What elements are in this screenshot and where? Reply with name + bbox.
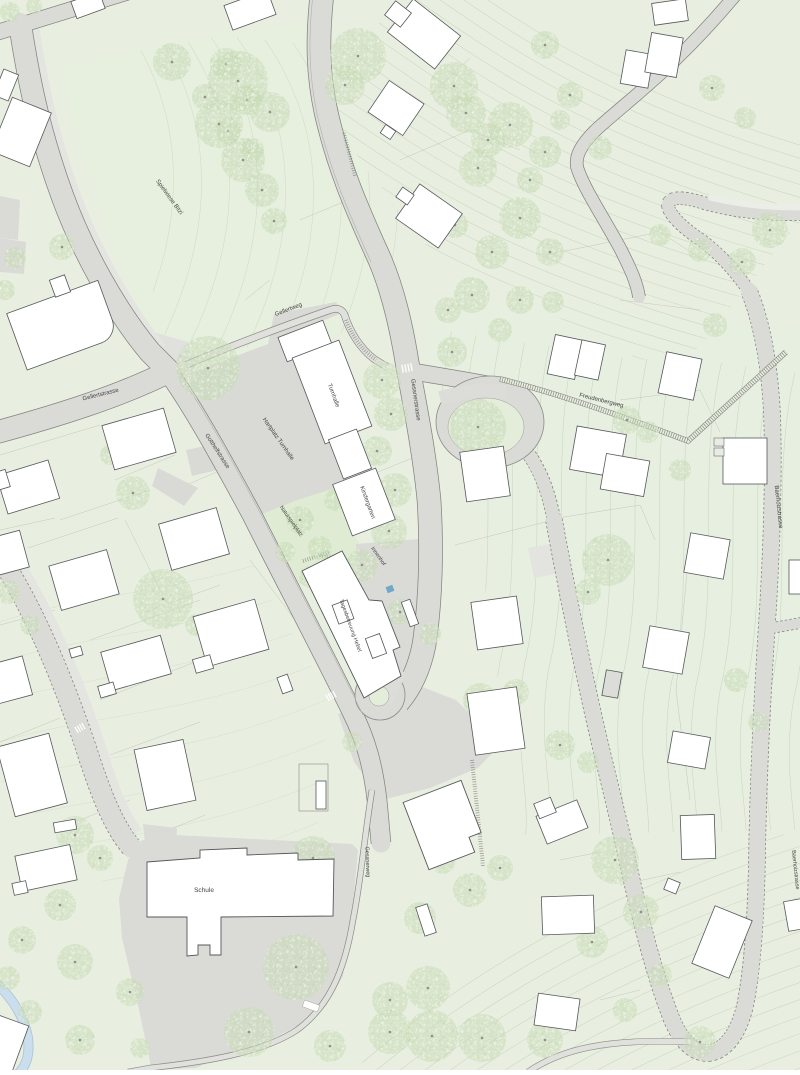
svg-text:Schule: Schule [194,887,214,894]
svg-text:Gessnerweg: Gessnerweg [363,846,370,877]
